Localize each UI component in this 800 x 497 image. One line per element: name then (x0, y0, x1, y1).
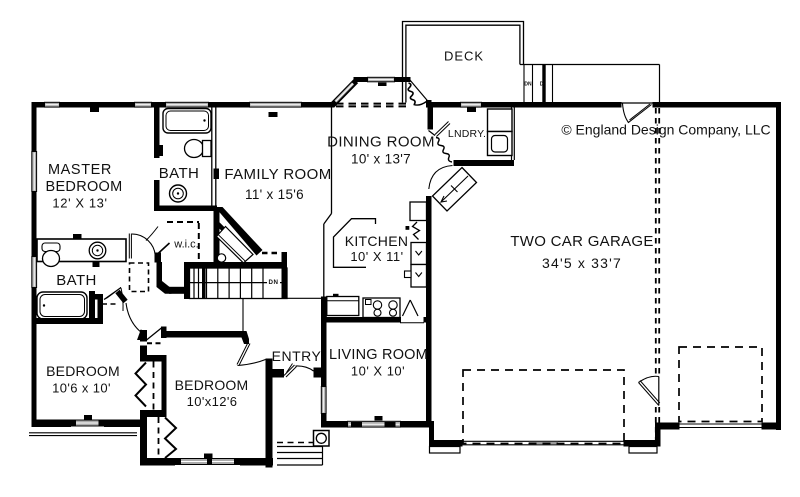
svg-text:10' X 11': 10' X 11' (350, 249, 403, 264)
svg-text:10'x12'6: 10'x12'6 (187, 394, 238, 409)
svg-text:LNDRY.: LNDRY. (448, 128, 486, 140)
svg-text:BEDROOM: BEDROOM (45, 179, 122, 195)
svg-text:BATH: BATH (56, 272, 97, 289)
svg-text:w.i.c.: w.i.c. (173, 239, 198, 251)
svg-text:FAMILY ROOM: FAMILY ROOM (224, 166, 331, 183)
svg-text:BATH: BATH (159, 165, 200, 182)
svg-text:DINING ROOM: DINING ROOM (327, 134, 435, 151)
svg-text:11' x 15'6: 11' x 15'6 (245, 187, 304, 202)
svg-text:DECK: DECK (444, 49, 484, 64)
svg-text:LIVING ROOM: LIVING ROOM (329, 347, 428, 363)
svg-text:34'5 x 33'7: 34'5 x 33'7 (542, 255, 622, 271)
svg-text:KITCHEN: KITCHEN (345, 233, 409, 249)
svg-text:DN: DN (524, 82, 532, 88)
svg-text:BEDROOM: BEDROOM (46, 363, 120, 379)
svg-text:DN: DN (269, 279, 279, 286)
svg-text:© England Design Company, LLC: © England Design Company, LLC (561, 122, 770, 138)
svg-text:BEDROOM: BEDROOM (175, 377, 249, 393)
svg-text:12' X 13': 12' X 13' (52, 196, 107, 211)
svg-text:TWO CAR GARAGE: TWO CAR GARAGE (510, 233, 653, 250)
svg-text:ENTRY: ENTRY (272, 348, 322, 364)
svg-text:MASTER: MASTER (48, 162, 112, 178)
svg-text:D: D (540, 82, 544, 88)
svg-text:10' x 13'7: 10' x 13'7 (351, 152, 411, 167)
svg-text:10' X 10': 10' X 10' (351, 364, 405, 379)
svg-text:10'6 x 10': 10'6 x 10' (52, 381, 111, 396)
